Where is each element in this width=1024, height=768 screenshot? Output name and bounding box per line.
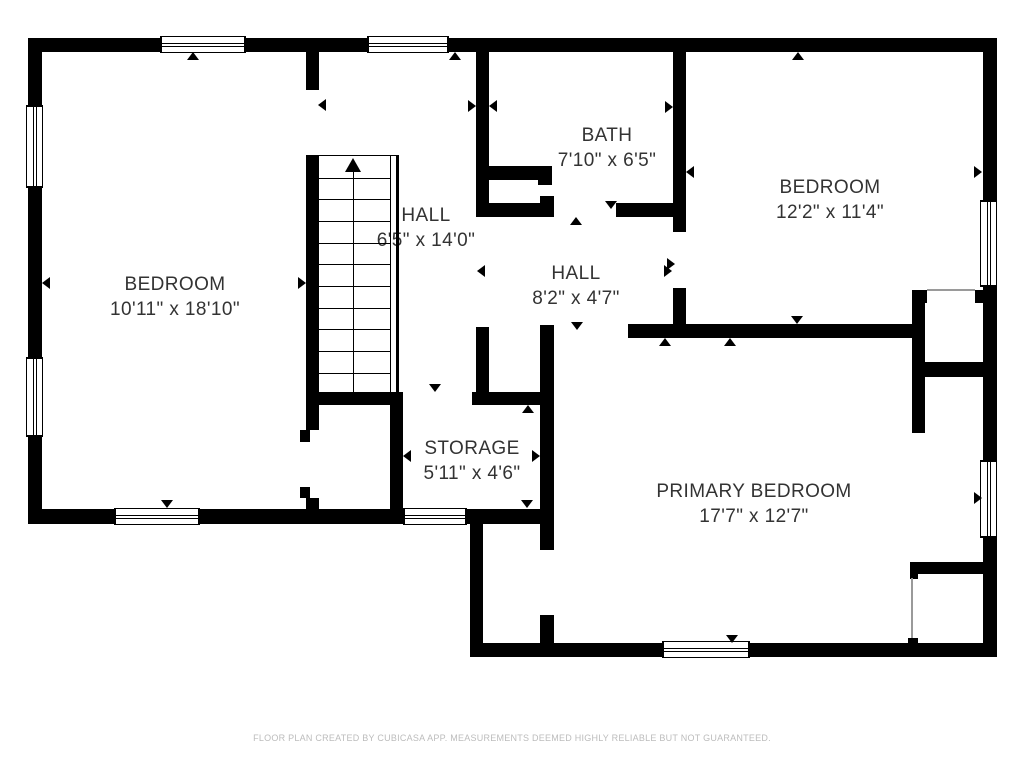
wall-segment [300, 430, 310, 442]
window [980, 200, 997, 287]
stair-step [319, 264, 390, 265]
wall-segment [306, 155, 319, 430]
wall-segment [628, 324, 920, 338]
window-pane-line [664, 648, 748, 649]
wall-segment [912, 290, 927, 303]
room-label-storage: STORAGE 5'11" x 4'6" [423, 436, 520, 486]
stair-rail [390, 156, 392, 393]
door-arrow [605, 201, 617, 209]
window [662, 641, 750, 658]
room-name: BEDROOM [110, 272, 240, 297]
room-label-bedroom-left: BEDROOM 10'11" x 18'10" [110, 272, 240, 322]
door-arrow [161, 500, 173, 508]
room-dimensions: 12'2" x 11'4" [776, 200, 884, 225]
stair-step [319, 243, 390, 244]
door-arrow [429, 384, 441, 392]
door-arrow [521, 500, 533, 508]
door-arrow [667, 258, 675, 270]
stair-step [319, 199, 390, 200]
stairs [319, 155, 399, 392]
room-label-hall-small: HALL 8'2" x 4'7" [532, 261, 619, 311]
window-pane-line [33, 359, 34, 435]
room-name: BEDROOM [776, 175, 884, 200]
door-arrow [187, 52, 199, 60]
wall-segment [300, 487, 310, 498]
window-pane-line [987, 202, 988, 285]
door-arrow [42, 277, 50, 289]
window-pane-line [36, 107, 37, 186]
door-arrow [522, 405, 534, 413]
room-dimensions: 8'2" x 4'7" [532, 286, 619, 311]
window-pane-line [405, 518, 465, 519]
window [160, 36, 246, 53]
door-arrow [726, 635, 738, 643]
wall-segment [910, 562, 984, 574]
room-name: BATH [558, 123, 656, 148]
window-pane-line [162, 43, 244, 44]
door-arrow [974, 166, 982, 178]
stair-step [319, 373, 390, 374]
door-arrow [477, 265, 485, 277]
wall-segment [306, 52, 319, 90]
wall-segment [538, 166, 552, 185]
wall-segment [306, 392, 402, 405]
wall-segment [540, 615, 554, 645]
window-pane-line [116, 515, 198, 516]
wall-segment [470, 509, 483, 657]
door-arrow [686, 166, 694, 178]
window [403, 508, 467, 525]
window-pane-line [990, 462, 991, 536]
window [26, 357, 43, 437]
stair-step [319, 221, 390, 222]
door-arrow [571, 322, 583, 330]
stair-step [319, 178, 390, 179]
window-pane-line [116, 518, 198, 519]
door-arrow [546, 491, 554, 503]
room-dimensions: 10'11" x 18'10" [110, 297, 240, 322]
window-pane-line [405, 515, 465, 516]
door-arrow [792, 52, 804, 60]
stair-direction-line [353, 170, 355, 393]
wall-segment [306, 498, 319, 511]
room-name: STORAGE [423, 436, 520, 461]
room-name: HALL [532, 261, 619, 286]
door-arrow [791, 316, 803, 324]
door-arrow [489, 100, 497, 112]
window-pane-line [33, 107, 34, 186]
door-arrow [659, 338, 671, 346]
window-pane-line [36, 359, 37, 435]
room-label-bath: BATH 7'10" x 6'5" [558, 123, 656, 173]
room-dimensions: 7'10" x 6'5" [558, 148, 656, 173]
window [26, 105, 43, 188]
door-arrow [298, 277, 306, 289]
stair-up-arrow [345, 158, 361, 172]
stair-step [319, 329, 390, 330]
door-arrow [974, 492, 982, 504]
floor-plan-canvas: BEDROOM 10'11" x 18'10" HALL 6'5" x 14'0… [0, 0, 1024, 768]
wall-segment [390, 392, 403, 511]
room-name: PRIMARY BEDROOM [656, 479, 851, 504]
wall-segment [975, 290, 984, 303]
window [367, 36, 449, 53]
wall-segment [540, 196, 554, 217]
wall-segment [920, 362, 984, 377]
window-pane-line [990, 202, 991, 285]
door-threshold [927, 289, 975, 291]
window-pane-line [664, 651, 748, 652]
door-arrow [665, 101, 673, 113]
room-dimensions: 17'7" x 12'7" [656, 504, 851, 529]
door-arrow [532, 450, 540, 462]
door-arrow [570, 217, 582, 225]
wall-segment [908, 638, 918, 644]
window-pane-line [369, 46, 447, 47]
window-pane-line [162, 46, 244, 47]
disclaimer-text: FLOOR PLAN CREATED BY CUBICASA APP. MEAS… [0, 733, 1024, 743]
room-label-primary-bedroom: PRIMARY BEDROOM 17'7" x 12'7" [656, 479, 851, 529]
room-dimensions: 5'11" x 4'6" [423, 461, 520, 486]
stair-step [319, 286, 390, 287]
window [114, 508, 200, 525]
door-arrow [468, 100, 476, 112]
window [980, 460, 997, 538]
door-arrow [449, 52, 461, 60]
window-pane-line [369, 43, 447, 44]
wall-segment [540, 325, 554, 550]
door-arrow [724, 338, 736, 346]
wall-segment [673, 52, 686, 232]
stair-rail [396, 156, 400, 393]
door-arrow [403, 450, 411, 462]
door-arrow [318, 99, 326, 111]
wall-segment [476, 52, 489, 217]
window-pane-line [987, 462, 988, 536]
room-label-bedroom-right: BEDROOM 12'2" x 11'4" [776, 175, 884, 225]
stair-step [319, 308, 390, 309]
door-threshold [911, 578, 913, 638]
stair-step [319, 351, 390, 352]
wall-segment [983, 38, 997, 657]
